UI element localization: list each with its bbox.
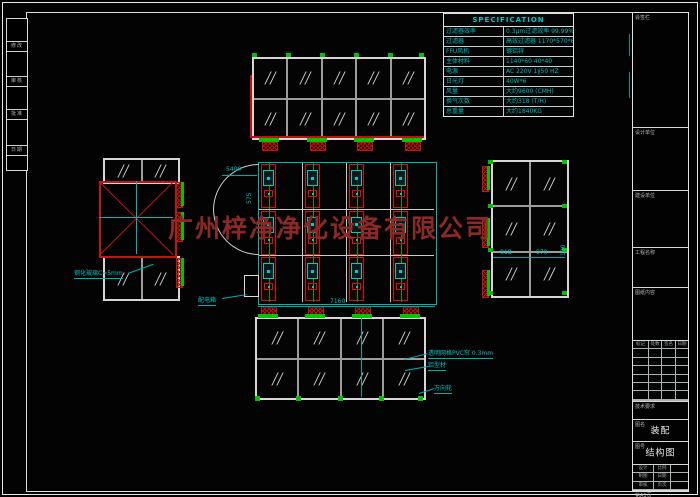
caster-foot [418, 396, 423, 401]
spec-table-rows: 过滤器效率0.3μm过滤效率 99.99%过滤器高效过滤器 1170*570*6… [444, 27, 573, 116]
caster-wheel [357, 142, 373, 151]
revision-cell [649, 383, 661, 390]
margin-label-cell: 修改 [7, 41, 27, 51]
glass-mark-icon [299, 112, 310, 125]
revision-cell [633, 391, 648, 398]
mullion-cap [419, 53, 424, 57]
dim-plan-left: 575 [247, 193, 253, 204]
glass-mark-icon [368, 112, 379, 125]
glass-mark-icon [398, 332, 409, 345]
glass-panel [493, 253, 529, 296]
glass-panel [254, 59, 286, 98]
margin-cell [7, 19, 27, 41]
glass-mark-icon [333, 112, 344, 125]
glass-mark-icon [272, 372, 283, 385]
revision-cell [649, 349, 661, 356]
caster-foot [296, 396, 301, 401]
watermark-text: 广州梓净净化设备有限公司 [168, 209, 492, 245]
revision-cell [633, 358, 648, 365]
spec-value: 大约318 (T/H) [504, 97, 573, 106]
spec-row: FFU风机镀铝锌 [444, 46, 573, 56]
revision-header-cell: 标记 [633, 341, 648, 348]
signature-cell: 比例 [654, 465, 670, 472]
glass-panel [384, 319, 424, 358]
spec-value: 镀铝锌 [504, 47, 573, 56]
signature-cell [671, 482, 688, 489]
signature-table: 设计比例制图日期审核页次 [633, 465, 688, 491]
top-elevation [252, 57, 426, 140]
glass-mark-icon [402, 72, 413, 85]
red-cross-panel [99, 181, 177, 258]
signature-cell: 审核 [633, 482, 653, 489]
caster-base [305, 314, 325, 318]
spec-value: 1140*60 40*40 [504, 57, 573, 66]
spec-value: 0.3μm过滤效率 99.99% [504, 27, 573, 36]
glass-panel [392, 100, 424, 139]
title-block-section: 会签栏 [633, 13, 688, 128]
glass-mark-icon [506, 177, 517, 190]
revision-cell [662, 375, 675, 382]
spec-row: 过滤器效率0.3μm过滤效率 99.99% [444, 27, 573, 36]
glass-panel [493, 207, 529, 250]
signature-cell: 日期 [654, 473, 670, 480]
glass-mark-icon [398, 372, 409, 385]
dim-plan-bottom: 7160 [330, 299, 345, 305]
title-block: 会签栏 设计单位 建设单位 工程名称 图纸内容 标记处数签名日期 技术要求 图名… [632, 12, 689, 492]
glass-mark-icon [155, 272, 166, 285]
revision-header-cell: 签名 [662, 341, 675, 348]
title-block-section: 图纸内容 [633, 288, 688, 341]
mullion-cap [252, 53, 257, 57]
caster-wheel [405, 142, 421, 151]
spec-value: 40W*6 [504, 77, 573, 86]
glass-mark-icon [299, 72, 310, 85]
spec-table: SPECIFICATION 过滤器效率0.3μm过滤效率 99.99%过滤器高效… [443, 13, 574, 117]
spec-label: 过滤器效率 [444, 27, 504, 36]
glass-panel [323, 59, 355, 98]
caster-foot [379, 396, 384, 401]
caster-base [487, 270, 490, 296]
caster-wheel [310, 142, 326, 151]
spec-label: FFU风机 [444, 47, 504, 56]
revision-cell [676, 366, 688, 373]
dim-plan-top: 5400 [226, 167, 241, 173]
revision-cell [676, 358, 688, 365]
caster-base [181, 182, 184, 206]
glass-panel [392, 59, 424, 98]
revision-cell [633, 383, 648, 390]
mullion-cap [286, 53, 291, 57]
drawing-title: 结构图 [633, 450, 688, 456]
title-block-section: 建设单位 [633, 191, 688, 248]
drawing-name-cell: 图名 装配 [633, 420, 688, 442]
signature-cell [671, 465, 688, 472]
glass-panel [143, 160, 179, 182]
dim-line-plan-top [222, 175, 257, 176]
spec-table-title: SPECIFICATION [444, 14, 573, 27]
revision-header-cell: 日期 [676, 341, 688, 348]
glass-mark-icon [333, 72, 344, 85]
glass-mark-icon [506, 268, 517, 281]
signature-cell: 页次 [654, 482, 670, 489]
revision-cell [649, 391, 661, 398]
signature-cell: 设计 [633, 465, 653, 472]
spec-row: 主体材料1140*60 40*40 [444, 56, 573, 66]
mullion-cap [488, 160, 493, 164]
revision-cell [662, 366, 675, 373]
spec-label: 换气次数 [444, 97, 504, 106]
glass-panel [299, 360, 339, 399]
revision-cell [633, 349, 648, 356]
caster-base [258, 314, 278, 318]
glass-mark-icon [117, 165, 128, 178]
dim-right-a: 818 [500, 250, 511, 256]
right-elevation [491, 160, 569, 298]
margin-cell [7, 155, 27, 170]
glass-mark-icon [155, 165, 166, 178]
mullion-cap [488, 248, 493, 252]
margin-cell [7, 86, 27, 109]
glass-panel [323, 100, 355, 139]
title-block-section: 技术要求 [633, 402, 688, 420]
revision-cell [662, 383, 675, 390]
glass-panel [143, 258, 179, 299]
margin-label-cell: 日期 [7, 145, 27, 155]
glass-mark-icon [544, 222, 555, 235]
revision-table: 标记处数签名日期 [633, 341, 688, 402]
signature-cell [671, 473, 688, 480]
glass-panel [299, 319, 339, 358]
spec-label: 过滤器 [444, 37, 504, 46]
spec-label: 日光灯 [444, 77, 504, 86]
revision-cell [649, 366, 661, 373]
cyan-tick [629, 72, 630, 98]
red-baseline [250, 136, 424, 138]
margin-label-cell: 批准 [7, 109, 27, 119]
callout-caster: 万向轮 [434, 386, 452, 394]
glass-panel [357, 59, 389, 98]
callout-curtain: 透明网格PVC帘 0.3mm [428, 351, 493, 359]
revision-cell [662, 358, 675, 365]
dim-line-plan-bottom [258, 306, 435, 307]
spec-row: 风量大约9600 (CMH) [444, 86, 573, 96]
drawing-name: 装配 [633, 428, 688, 434]
spec-label: 主体材料 [444, 57, 504, 66]
revision-cell [676, 349, 688, 356]
glass-mark-icon [265, 72, 276, 85]
glass-panel [531, 162, 567, 205]
callout-power-box: 配电箱 [198, 298, 216, 306]
callout-glass: 钢化玻璃C=5mm [74, 271, 123, 279]
spec-value: AC 220V 1∮50 HZ [504, 67, 573, 76]
dim-line-bottom-view [361, 318, 362, 397]
mullion-cap [388, 53, 393, 57]
revision-cell [662, 391, 675, 398]
margin-cell [7, 51, 27, 76]
red-edge-line [250, 75, 252, 137]
revision-cell [676, 391, 688, 398]
glass-mark-icon [544, 177, 555, 190]
glass-mark-icon [544, 268, 555, 281]
caster-base [352, 314, 372, 318]
caster-base [487, 166, 490, 190]
spec-row: 日光灯40W*6 [444, 76, 573, 86]
mullion-cap [562, 204, 567, 208]
revision-cell [649, 375, 661, 382]
glass-mark-icon [265, 112, 276, 125]
revision-cell [633, 375, 648, 382]
glass-panel [531, 253, 567, 296]
spec-row: 换气次数大约318 (T/H) [444, 96, 573, 106]
cad-drawing-sheet: 修改审核批准日期 SPECIFICATION 过滤器效率0.3μm过滤效率 99… [0, 0, 700, 497]
revision-cell [662, 349, 675, 356]
drawing-number-cell: 图号 结构图 [633, 442, 688, 465]
caster-wheel [262, 142, 278, 151]
spec-row: 电源AC 220V 1∮50 HZ [444, 66, 573, 76]
dim-right-b: 970 [536, 250, 547, 256]
caster-base [181, 258, 184, 286]
glass-mark-icon [272, 332, 283, 345]
glass-panel [288, 100, 320, 139]
glass-panel [254, 100, 286, 139]
spec-label: 总重量 [444, 107, 504, 116]
revision-cell [676, 375, 688, 382]
spec-row: 总重量大约1840KG [444, 106, 573, 116]
left-margin-strip: 修改审核批准日期 [6, 18, 28, 171]
revision-header-cell: 处数 [649, 341, 661, 348]
title-block-section: 工程名称 [633, 248, 688, 288]
glass-mark-icon [314, 372, 325, 385]
cyan-tick [629, 34, 630, 56]
caster-foot [255, 396, 260, 401]
mullion-cap [320, 53, 325, 57]
title-block-footer: 第A1页 [633, 491, 688, 497]
spec-label: 电源 [444, 67, 504, 76]
margin-label-cell: 审核 [7, 76, 27, 86]
glass-panel [288, 59, 320, 98]
bottom-elevation [255, 317, 426, 400]
revision-cell [633, 366, 648, 373]
mullion-cap [488, 204, 493, 208]
spec-value: 大约9600 (CMH) [504, 87, 573, 96]
dim-right-c: 120 [561, 245, 567, 256]
dim-line-right-view [493, 257, 565, 258]
glass-panel [257, 319, 297, 358]
mullion-cap [562, 160, 567, 164]
glass-mark-icon [368, 72, 379, 85]
title-block-section: 设计单位 [633, 128, 688, 191]
signature-cell: 制图 [633, 473, 653, 480]
spec-row: 过滤器高效过滤器 1170*570*69 [444, 36, 573, 46]
glass-mark-icon [506, 222, 517, 235]
glass-panel [357, 100, 389, 139]
caster-base [400, 314, 420, 318]
callout-profile: 铝型材 [428, 363, 446, 371]
glass-mark-icon [402, 112, 413, 125]
spec-value: 高效过滤器 1170*570*69 [504, 37, 573, 46]
glass-panel [493, 162, 529, 205]
revision-cell [649, 358, 661, 365]
spec-label: 风量 [444, 87, 504, 96]
revision-cell [676, 383, 688, 390]
glass-panel [105, 160, 141, 182]
glass-mark-icon [314, 332, 325, 345]
glass-panel [257, 360, 297, 399]
caster-foot [338, 396, 343, 401]
spec-value: 大约1840KG [504, 107, 573, 116]
mullion-cap [354, 53, 359, 57]
margin-cell [7, 119, 27, 145]
centerline-v [136, 181, 137, 254]
mullion-cap [562, 291, 567, 295]
